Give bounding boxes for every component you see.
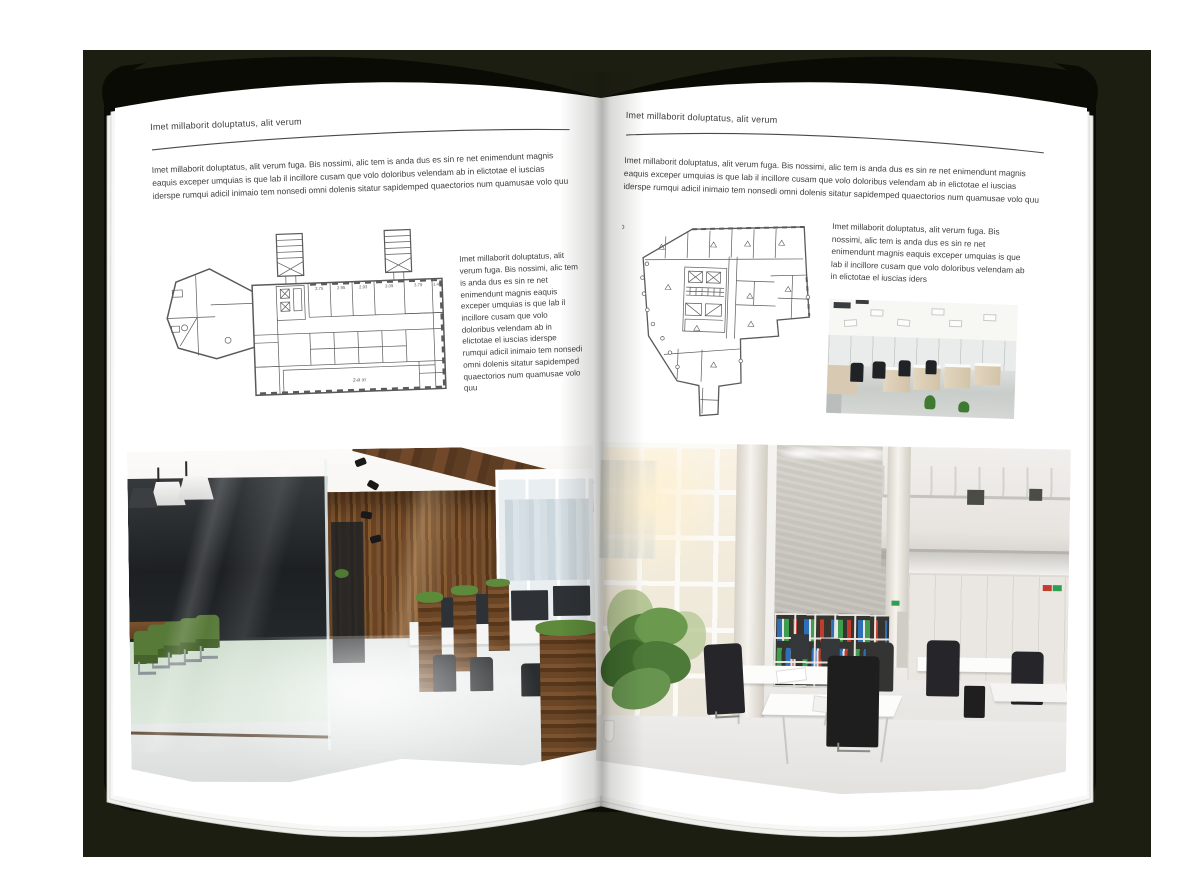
side-paragraph: Imet millaborit doluptatus, alit verum f… xyxy=(459,250,584,395)
plan-label: 2.75 xyxy=(315,286,324,291)
waste-bin xyxy=(963,686,985,718)
ceiling-light xyxy=(896,318,910,326)
intro-paragraph: Imet millaborit doluptatus, alit verum f… xyxy=(152,149,573,204)
left-page-content: Imet millaborit doluptatus, alit verum I… xyxy=(150,106,584,415)
city-view xyxy=(505,499,590,580)
plan-lines xyxy=(164,229,446,399)
red-sign xyxy=(1043,585,1052,591)
office-chair xyxy=(899,360,911,376)
building-outline xyxy=(252,279,446,396)
potted-plant xyxy=(596,603,702,759)
wall-vent xyxy=(967,490,984,505)
plan-label: 1.45 xyxy=(433,282,442,287)
left-wing-outline xyxy=(165,268,254,361)
white-desk xyxy=(990,683,1069,702)
green-sign xyxy=(1053,586,1062,592)
photo-dark-office-interior xyxy=(127,445,598,785)
planter-grass xyxy=(416,591,443,603)
monitor xyxy=(511,590,549,621)
plan-label: 2.93 xyxy=(359,284,368,289)
plant-pot xyxy=(603,720,615,742)
chair-base xyxy=(837,743,870,753)
intro-paragraph: Imet millaborit doluptatus, alit verum f… xyxy=(623,154,1044,207)
plan-label: 3.79 xyxy=(414,282,423,287)
ceiling-light xyxy=(949,319,962,326)
magazine-mockup-stage: Imet millaborit doluptatus, alit verum I… xyxy=(0,0,1200,891)
floor-highlight xyxy=(195,633,542,785)
wall-vent xyxy=(1029,489,1042,502)
ceiling-light xyxy=(844,319,857,327)
monitor xyxy=(790,634,809,659)
small-plant xyxy=(958,401,970,413)
planter-grass xyxy=(535,620,598,637)
desk-cabinet xyxy=(944,364,971,388)
side-paragraph: Imet millaborit doluptatus, alit verum f… xyxy=(830,220,1028,289)
ceiling-recess xyxy=(856,299,869,304)
office-chair xyxy=(925,360,937,375)
window-strip xyxy=(260,387,442,394)
plan-dimension-labels: 2.75 2.95 2.93 3.09 3.79 1.45 2-й эт xyxy=(315,282,445,386)
desk-cabinet xyxy=(974,362,1001,385)
office-chair xyxy=(850,363,864,382)
planter-grass xyxy=(486,579,510,587)
photo-small-office-interior xyxy=(826,298,1018,418)
plan-label: 2.95 xyxy=(337,285,346,290)
door-symbols xyxy=(655,236,793,369)
plan-label: 3.09 xyxy=(385,284,394,289)
ceiling-light xyxy=(983,314,996,321)
photo-bright-office-interior xyxy=(596,442,1071,799)
ceiling-recess xyxy=(833,302,850,308)
background-door xyxy=(826,394,842,419)
wood-planter-large xyxy=(540,629,598,763)
sun-glare xyxy=(599,449,723,577)
office-chair-foreground xyxy=(827,656,880,748)
office-chair xyxy=(926,640,960,697)
small-plant xyxy=(924,395,936,409)
right-page-content: Imet millaborit doluptatus, alit verum I… xyxy=(616,110,1050,433)
floor-plan-drawing-left: 2.75 2.95 2.93 3.09 3.79 1.45 2-й эт xyxy=(154,221,453,416)
monitor xyxy=(553,586,591,617)
office-chair xyxy=(704,642,745,714)
ceiling-light xyxy=(931,309,944,316)
exit-sign xyxy=(891,601,899,606)
chair-base xyxy=(715,709,740,718)
ceiling-light xyxy=(871,309,884,316)
floor-plan-drawing-right xyxy=(616,213,821,425)
right-column: Imet millaborit doluptatus, alit verum f… xyxy=(826,220,1028,419)
plan-row: 2.75 2.95 2.93 3.09 3.79 1.45 2-й эт Ime… xyxy=(154,216,584,415)
plan-lines xyxy=(638,222,812,419)
planter-grass xyxy=(451,585,478,595)
plan-row: Imet millaborit doluptatus, alit verum f… xyxy=(616,213,1047,433)
plan-caption: 2-й эт xyxy=(353,377,367,385)
window-strip xyxy=(692,224,804,234)
office-chair xyxy=(872,361,886,379)
